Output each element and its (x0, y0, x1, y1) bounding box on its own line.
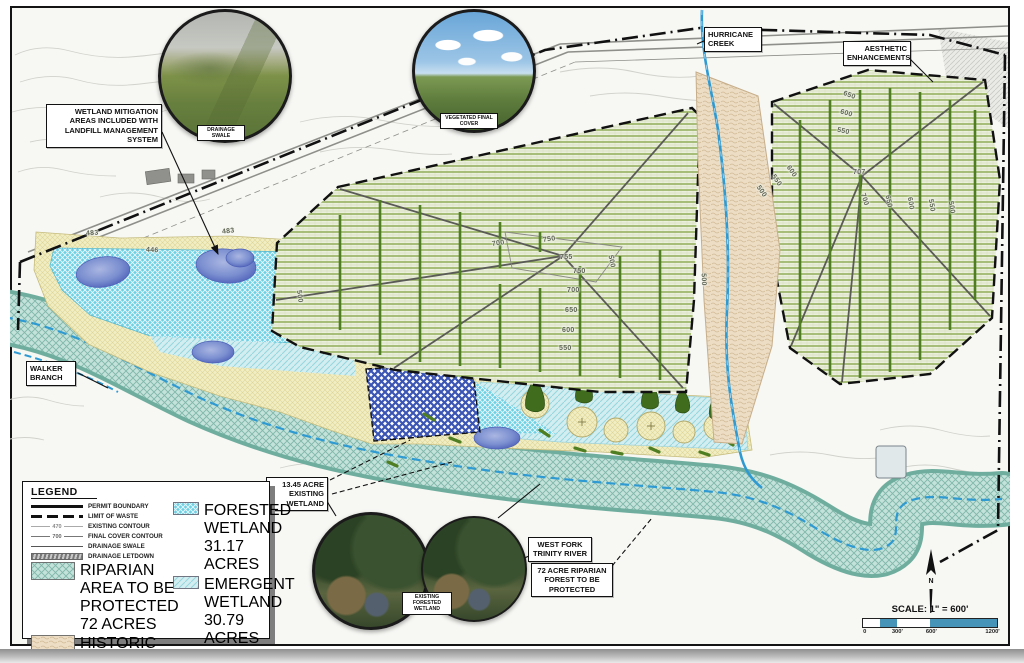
drainage-swale-symbol (31, 546, 83, 547)
callout-west-fork: WEST FORK TRINITY RIVER (528, 537, 592, 562)
contour-label: 650 (565, 307, 578, 314)
callout-wetland-mitigation: WETLAND MITIGATION AREAS INCLUDED WITH L… (46, 104, 162, 148)
contour-label: 483 (86, 230, 99, 238)
forested-wetland-swatch (173, 502, 199, 515)
sheet-shadow (0, 649, 1024, 663)
contour-label: 550 (559, 345, 572, 352)
limit-of-waste-symbol (31, 515, 83, 518)
contour-label: 755 (560, 254, 573, 261)
legend: LEGEND PERMIT BOUNDARY LIMIT OF WASTE 47… (22, 481, 270, 639)
callout-hurricane-creek: HURRICANE CREEK (704, 27, 762, 52)
existing-forested-wetland-photo-label: EXISTING FORESTED WETLAND (402, 592, 452, 615)
contour-label: 500 (700, 273, 707, 286)
vegetated-final-cover-photo-label: VEGETATED FINAL COVER (440, 113, 498, 129)
contour-label: 600 (562, 327, 575, 334)
legend-item-drainage-letdown: DRAINAGE LETDOWN (31, 552, 167, 561)
riparian-area-swatch (31, 562, 75, 580)
north-letter: N (928, 578, 933, 585)
permit-boundary-symbol (31, 505, 83, 508)
emergent-wetland-swatch (173, 576, 199, 589)
callout-walker-branch: WALKER BRANCH (26, 361, 76, 386)
contour-label: 446 (146, 247, 159, 255)
legend-item-forested-wetland: FORESTED WETLAND31.17 ACRES (173, 502, 269, 574)
callout-riparian-forest: 72 ACRE RIPARIAN FOREST TO BE PROTECTED (531, 563, 613, 597)
scale-bar-segments (862, 618, 998, 628)
callout-aesthetic-enhancements: AESTHETIC ENHANCEMENTS (843, 41, 911, 66)
final-cover-contour-symbol: 700 (31, 534, 83, 540)
legend-left-column: PERMIT BOUNDARY LIMIT OF WASTE 470 EXIST… (31, 502, 167, 663)
right-landfill-mound (772, 70, 1000, 384)
legend-item-final-cover-contour: 700 FINAL COVER CONTOUR (31, 532, 167, 541)
legend-right-column: FORESTED WETLAND31.17 ACRES EMERGENT WET… (173, 502, 269, 663)
drainage-swale-photo (158, 9, 292, 143)
scale-tick-labels: 0 300' 600' 1200' (862, 629, 998, 638)
legend-item-drainage-swale: DRAINAGE SWALE (31, 542, 167, 551)
contour-label: 707 (853, 169, 866, 176)
legend-item-permit-boundary: PERMIT BOUNDARY (31, 502, 167, 511)
legend-item-emergent-wetland: EMERGENT WETLAND30.79 ACRES (173, 576, 269, 648)
legend-item-limit-of-waste: LIMIT OF WASTE (31, 512, 167, 521)
existing-contour-symbol: 470 (31, 524, 83, 530)
central-landfill-mound (272, 108, 700, 392)
contour-label: 700 (567, 287, 580, 294)
retention-pond (876, 446, 906, 478)
contour-label: 483 (222, 227, 235, 235)
contour-label: 750 (573, 268, 586, 275)
legend-item-existing-contour: 470 EXISTING CONTOUR (31, 522, 167, 531)
scale-bar: SCALE: 1" = 600' 0 300' 600' 1200' (862, 604, 998, 638)
legend-title: LEGEND (31, 486, 97, 499)
site-plan-sheet: 483 446 483 700 750 755 750 700 650 600 … (0, 0, 1024, 663)
legend-item-riparian-area: RIPARIAN AREA TO BE PROTECTED72 ACRES (31, 562, 167, 634)
drainage-swale-photo-label: DRAINAGE SWALE (197, 125, 245, 141)
contour-label: 500 (295, 290, 303, 303)
drainage-letdown-symbol (31, 553, 83, 560)
scale-title: SCALE: 1" = 600' (862, 604, 998, 615)
